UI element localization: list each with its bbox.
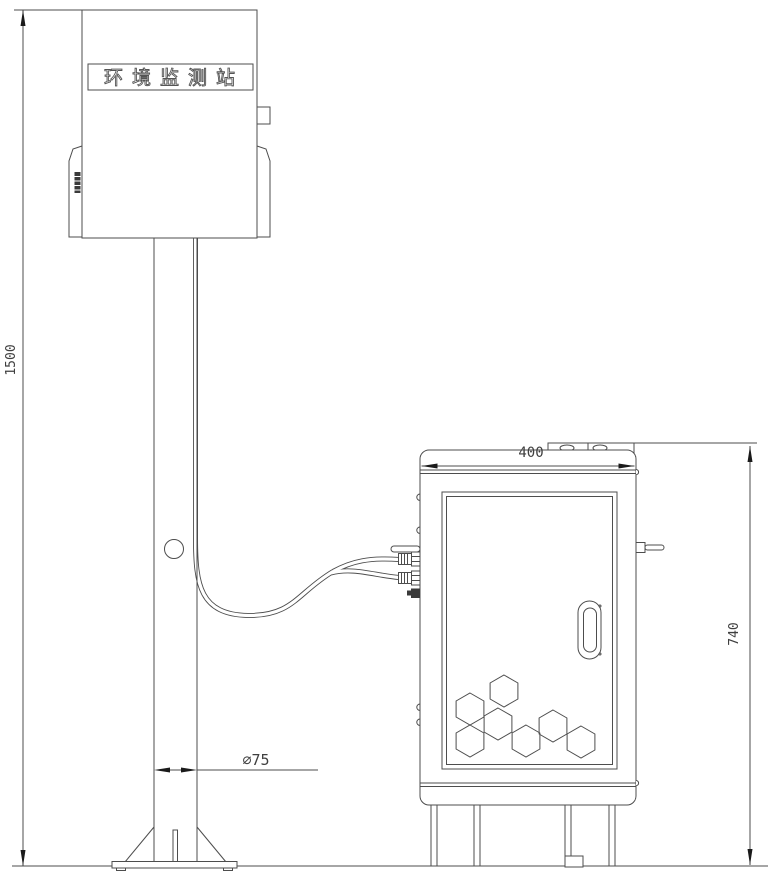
center-fin (173, 830, 178, 862)
tab-right-bottom (636, 781, 639, 786)
gusset-right (197, 827, 226, 862)
cable (196, 238, 400, 616)
cabinet-legs (431, 805, 615, 867)
tab-right-top (636, 470, 639, 475)
technical-drawing: 环境监测站 (0, 0, 769, 882)
base-plate (112, 862, 237, 869)
dim-label-cabinet-height: 740 (727, 622, 742, 645)
mounting-base (112, 827, 237, 871)
cable-gland-lower (399, 571, 421, 585)
side-bracket-right (257, 146, 270, 237)
nameplate-label: 环境监测站 (104, 67, 244, 89)
station-head-box: 环境监测站 (69, 10, 270, 238)
dim-label-cabinet-width: 400 (518, 445, 543, 461)
door-handle (578, 601, 601, 659)
side-knob (257, 107, 270, 124)
pole-cable-hole (165, 540, 184, 559)
connector-dark (407, 589, 420, 599)
leg-foot-detail (565, 856, 583, 867)
cabinet-body (420, 450, 636, 805)
head-box-body (82, 10, 257, 238)
gusset-left (125, 827, 154, 862)
equipment-cabinet (391, 443, 664, 867)
sensor-rod-right (636, 543, 664, 553)
dimension-pole-diameter: ∅75 (154, 751, 318, 773)
dimension-pole-height: 1500 (4, 10, 26, 866)
cable-gland-upper (399, 552, 421, 566)
sensor-rod-left (391, 546, 420, 552)
dimension-cabinet-height: 740 (727, 446, 753, 865)
dim-label-pole-diameter: ∅75 (242, 751, 269, 769)
pole (154, 238, 197, 862)
dim-label-pole-height: 1500 (4, 344, 19, 375)
